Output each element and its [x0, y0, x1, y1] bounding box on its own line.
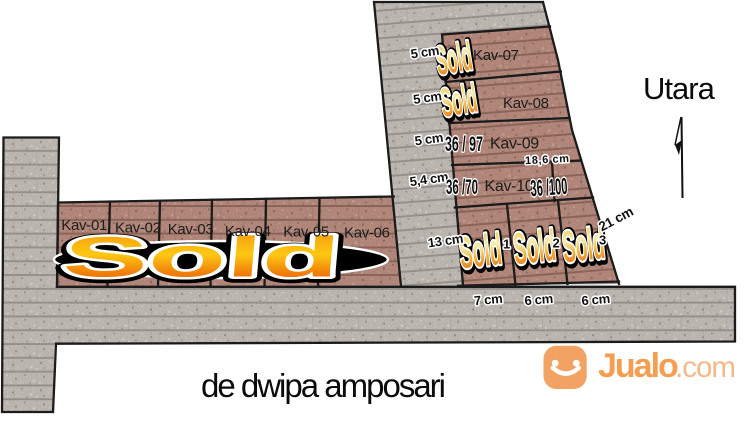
- svg-text:Kav-01: Kav-01: [61, 217, 107, 234]
- svg-text:Sold: Sold: [457, 225, 504, 278]
- svg-text:Jualo: Jualo: [598, 347, 678, 385]
- svg-text:Sold: Sold: [438, 77, 480, 126]
- svg-text:Kav-09: Kav-09: [490, 136, 539, 153]
- svg-text:Kav-06: Kav-06: [344, 225, 390, 242]
- svg-text:3: 3: [599, 233, 606, 248]
- svg-text:Kav-08: Kav-08: [503, 95, 549, 112]
- svg-text:Kav-10: Kav-10: [485, 178, 534, 195]
- svg-text:36 / 97: 36 / 97: [445, 133, 483, 156]
- svg-text:36 /70: 36 /70: [446, 176, 478, 199]
- svg-text:1: 1: [503, 237, 510, 252]
- svg-text:Kav-05: Kav-05: [283, 224, 329, 241]
- svg-text:Kav-02: Kav-02: [115, 220, 161, 237]
- svg-text:.com: .com: [675, 351, 735, 384]
- svg-text:Kav-07: Kav-07: [473, 47, 519, 64]
- svg-text:2: 2: [553, 236, 560, 251]
- svg-text:6 cm: 6 cm: [581, 291, 611, 308]
- svg-text:Utara: Utara: [643, 71, 716, 106]
- svg-text:Kav-04: Kav-04: [225, 223, 271, 240]
- svg-text:7 cm: 7 cm: [473, 291, 503, 308]
- svg-text:de dwipa amposari: de dwipa amposari: [201, 367, 445, 404]
- svg-text:6 cm: 6 cm: [524, 291, 554, 308]
- svg-text:18,6 cm: 18,6 cm: [525, 153, 570, 167]
- svg-text:Kav-03: Kav-03: [168, 221, 214, 238]
- svg-text:36 /100: 36 /100: [530, 173, 569, 202]
- svg-text:Sold: Sold: [511, 221, 558, 274]
